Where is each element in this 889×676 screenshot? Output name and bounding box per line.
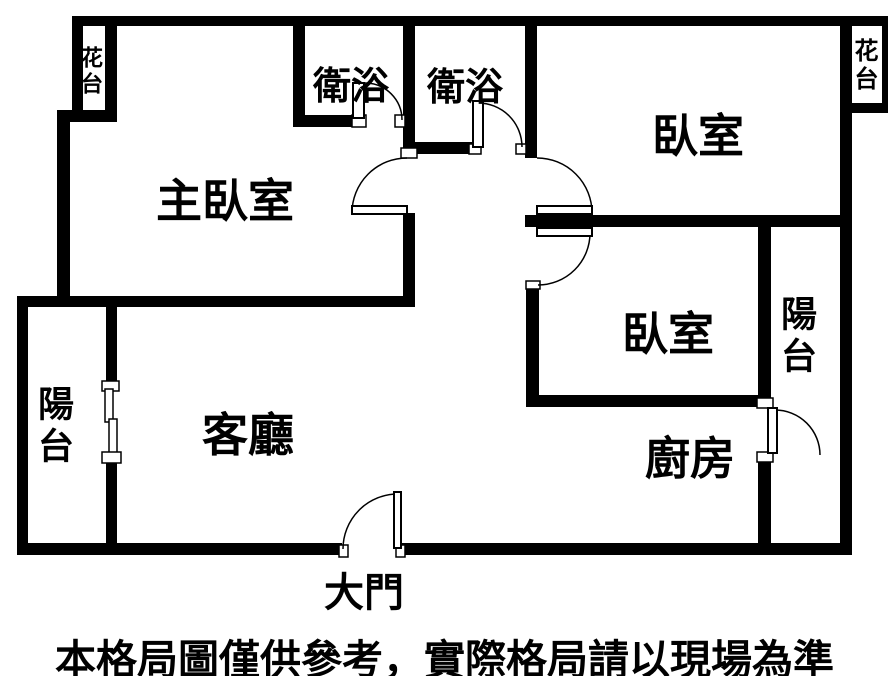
door-jamb (395, 115, 405, 127)
door-bedroom-top (537, 158, 592, 214)
bedroom-top-label: 臥室 (648, 100, 748, 166)
floor-plan: 花台 花台 衛浴 衛浴 臥室 主臥室 臥室 陽台 陽台 客廳 廚房 大門 本格局… (0, 0, 889, 676)
sliding-door-balcony-left (102, 381, 121, 463)
door-swing-arc (343, 494, 398, 549)
bath-left-label: 衛浴 (303, 55, 399, 110)
wall-master-west (57, 110, 70, 307)
bath-right-label: 衛浴 (417, 56, 513, 111)
door-leaf (537, 206, 592, 214)
wall-between-baths (403, 26, 415, 148)
door-swing-arc (537, 158, 592, 213)
wall-bath2-south (411, 142, 473, 154)
bedroom-mid-label: 臥室 (618, 298, 718, 364)
door-jamb (516, 144, 526, 154)
wall-east (840, 16, 852, 555)
door-jamb (526, 281, 540, 289)
door-master-bedroom (352, 148, 417, 214)
flower-bed-right-label: 花台 (855, 27, 881, 105)
wall-kitchen-north (526, 395, 770, 407)
wall-master-east (403, 213, 415, 307)
wall-flowerbed-right-east (882, 16, 888, 103)
door-leaf (352, 206, 407, 214)
wall-bottom-right (402, 543, 852, 555)
living-room-label: 客廳 (198, 399, 298, 465)
master-bedroom-label: 主臥室 (150, 165, 300, 231)
wall-bottom-left (17, 543, 342, 555)
wall-balcony-left-east-upper (106, 307, 117, 382)
slider-track-cap (102, 452, 121, 463)
door-swing-arc (775, 410, 820, 455)
door-jamb (757, 398, 773, 408)
door-main-entrance (339, 492, 405, 557)
flower-bed-left-label: 花台 (82, 31, 106, 113)
door-swing-arc (538, 233, 590, 285)
wall-balcony-right-west-lower (758, 455, 771, 555)
door-swing-arc (352, 158, 407, 213)
wall-top (72, 16, 888, 26)
wall-balcony-left-east-lower (106, 462, 117, 543)
disclaimer-text: 本格局圖僅供參考，實際格局請以現場為準 (0, 626, 889, 676)
door-kitchen-balcony (757, 398, 820, 462)
wall-living-north (17, 296, 415, 307)
door-jamb (401, 148, 417, 158)
kitchen-label: 廚房 (640, 422, 740, 487)
wall-flowerbed-left-east (105, 26, 117, 122)
wall-bath1-south (293, 115, 355, 127)
wall-bedroom-mid-west (526, 284, 539, 407)
door-bedroom-mid (526, 228, 592, 289)
slider-panel (105, 389, 113, 422)
door-leaf (394, 492, 401, 548)
balcony-left-label: 陽台 (41, 381, 79, 473)
wall-bedroom-top-south (525, 215, 852, 227)
door-leaf (537, 228, 592, 236)
door-leaf (768, 408, 777, 453)
wall-bath2-east (525, 26, 537, 158)
main-entrance-label: 大門 (314, 560, 414, 618)
balcony-right-label: 陽台 (784, 291, 822, 383)
